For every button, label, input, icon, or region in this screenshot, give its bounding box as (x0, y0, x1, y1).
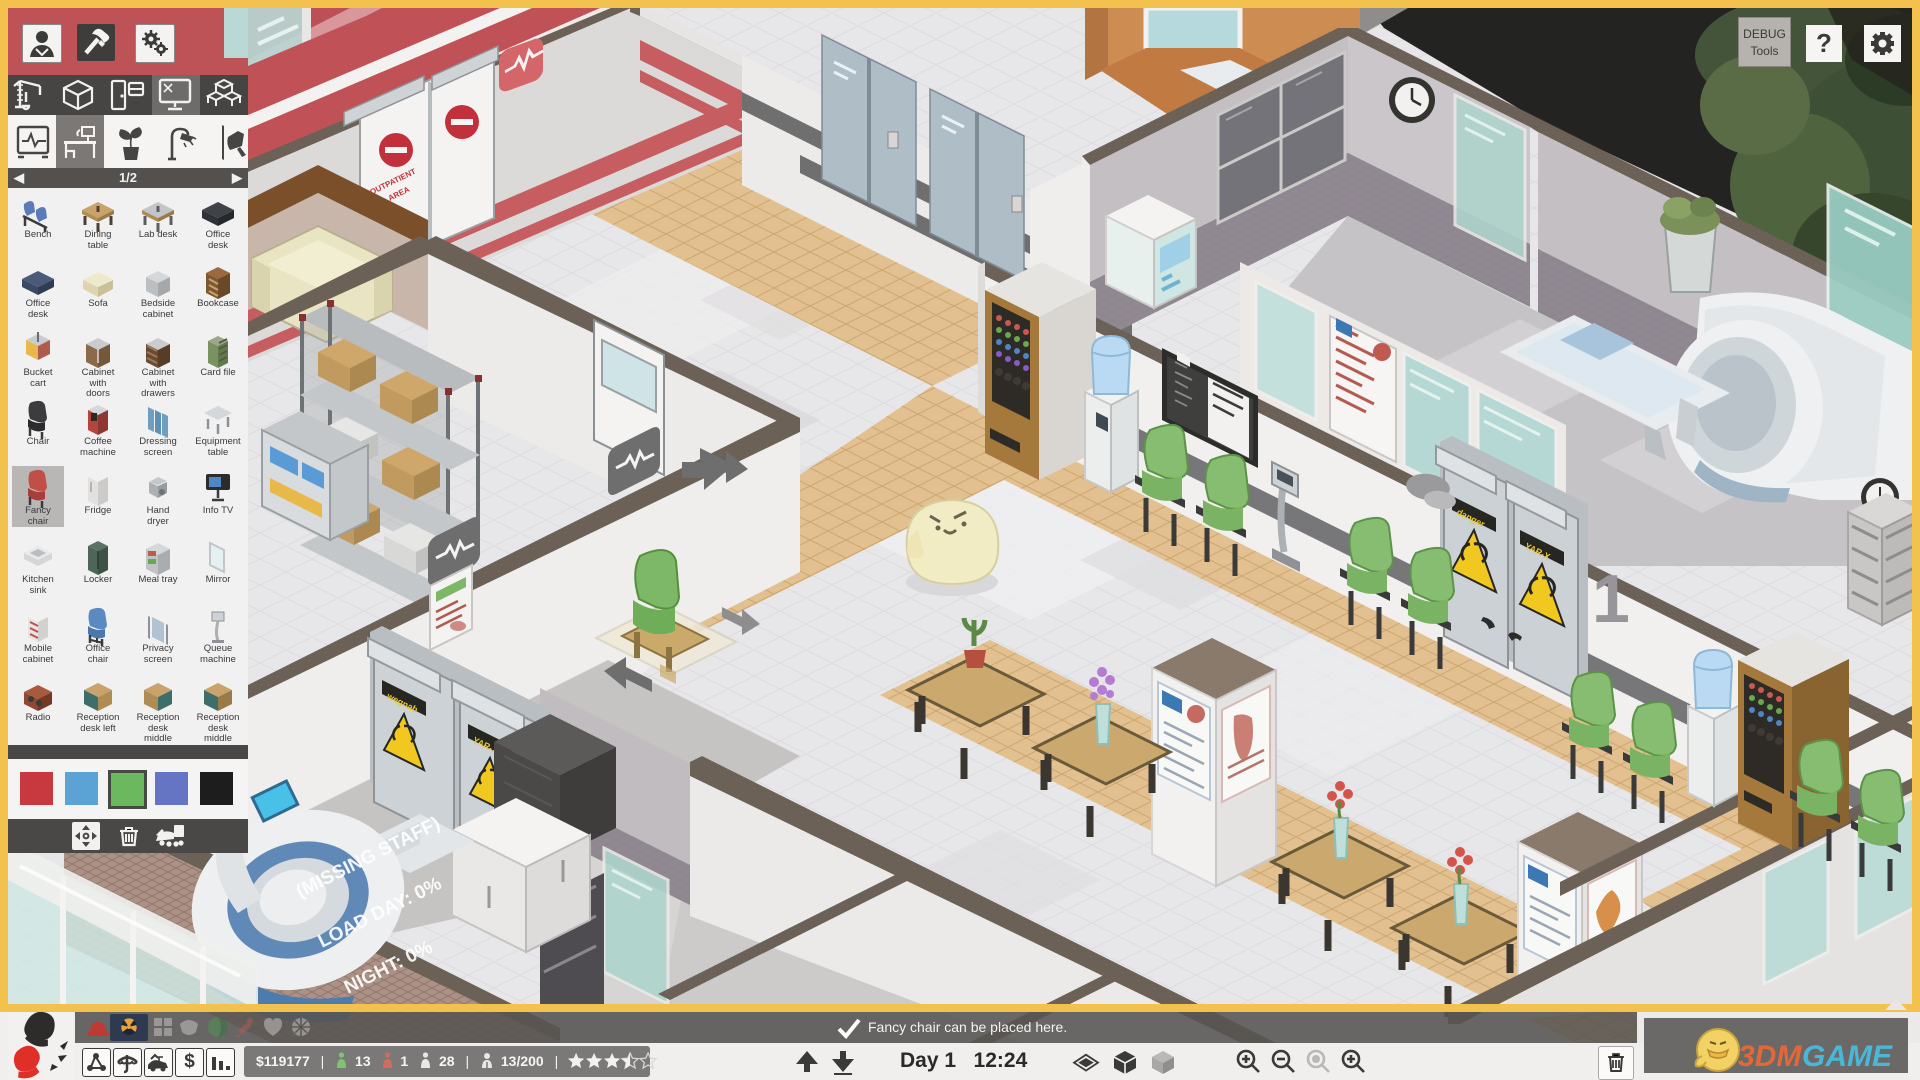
svg-text:GAME: GAME (1802, 1040, 1893, 1073)
svg-text:3DM: 3DM (1738, 1040, 1802, 1073)
